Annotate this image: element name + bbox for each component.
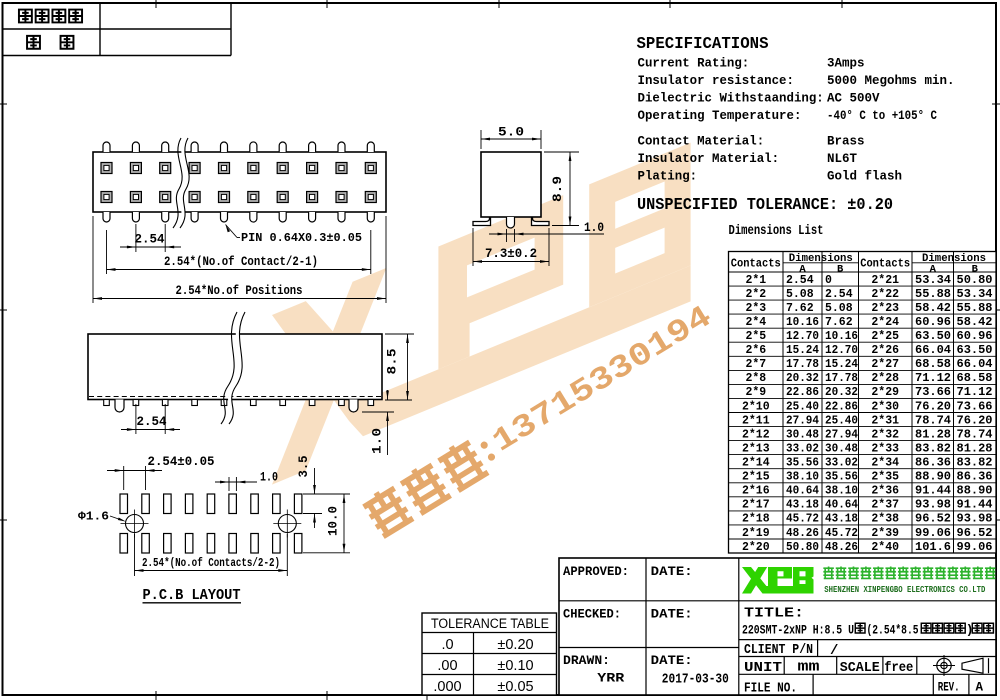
svg-text:2.54: 2.54 xyxy=(825,288,853,301)
svg-text:±0.05: ±0.05 xyxy=(497,679,533,695)
svg-text:68.58: 68.58 xyxy=(915,358,951,371)
svg-text:DRAWN:: DRAWN: xyxy=(563,653,610,668)
svg-text:38.10: 38.10 xyxy=(825,485,858,498)
svg-text:81.28: 81.28 xyxy=(957,442,993,455)
svg-text:2*33: 2*33 xyxy=(871,442,899,455)
svg-text:NL6T: NL6T xyxy=(827,152,858,166)
svg-text:2.54: 2.54 xyxy=(135,233,165,247)
svg-text:free: free xyxy=(884,661,913,676)
svg-text:43.18: 43.18 xyxy=(786,499,819,512)
svg-text:3Amps: 3Amps xyxy=(827,57,865,71)
svg-text:2*26: 2*26 xyxy=(871,344,899,357)
svg-text:2*1: 2*1 xyxy=(745,274,766,287)
svg-text:2*12: 2*12 xyxy=(742,428,770,441)
svg-text:1.0: 1.0 xyxy=(584,221,604,235)
svg-text:25.40: 25.40 xyxy=(786,400,819,413)
svg-text:30.48: 30.48 xyxy=(825,442,858,455)
svg-text:101.6: 101.6 xyxy=(915,541,951,554)
svg-text:86.36: 86.36 xyxy=(915,457,951,470)
svg-text:2*30: 2*30 xyxy=(871,400,899,413)
svg-text:TITLE:: TITLE: xyxy=(744,607,804,622)
svg-text:DATE:: DATE: xyxy=(651,564,693,579)
svg-text:78.74: 78.74 xyxy=(915,414,951,427)
svg-text:DATE:: DATE: xyxy=(651,607,693,622)
svg-text:2*32: 2*32 xyxy=(871,428,899,441)
svg-text:SCALE: SCALE xyxy=(840,661,880,676)
svg-text:40.64: 40.64 xyxy=(825,499,858,512)
svg-text:P.C.B LAYOUT: P.C.B LAYOUT xyxy=(143,588,241,604)
svg-text:Plating:: Plating: xyxy=(638,170,698,184)
svg-text:2*5: 2*5 xyxy=(745,330,766,343)
svg-text:.0: .0 xyxy=(441,637,453,653)
svg-text:91.44: 91.44 xyxy=(957,499,993,512)
svg-text:2*4: 2*4 xyxy=(745,316,766,329)
svg-text:76.20: 76.20 xyxy=(957,414,993,427)
svg-text:Φ1.6: Φ1.6 xyxy=(78,510,109,524)
svg-text:66.04: 66.04 xyxy=(957,358,993,371)
svg-text:AC 500V: AC 500V xyxy=(827,92,880,106)
svg-text:2*8: 2*8 xyxy=(745,372,766,385)
svg-text:1.0: 1.0 xyxy=(260,471,278,485)
svg-text:-40° C to +105° C: -40° C to +105° C xyxy=(827,109,937,123)
svg-text:45.72: 45.72 xyxy=(786,513,819,526)
svg-text:2*34: 2*34 xyxy=(871,457,899,470)
svg-text:40.64: 40.64 xyxy=(786,485,819,498)
svg-text:2*24: 2*24 xyxy=(871,316,899,329)
svg-text:7.62: 7.62 xyxy=(786,302,814,315)
svg-text:2*39: 2*39 xyxy=(871,527,899,540)
svg-text:68.58: 68.58 xyxy=(957,372,993,385)
svg-text:22.86: 22.86 xyxy=(825,400,858,413)
svg-text:20.32: 20.32 xyxy=(825,386,858,399)
svg-text:17.78: 17.78 xyxy=(825,372,858,385)
svg-text:35.56: 35.56 xyxy=(786,457,819,470)
svg-text:93.98: 93.98 xyxy=(957,513,993,526)
svg-text:20.32: 20.32 xyxy=(786,372,819,385)
svg-text:2*6: 2*6 xyxy=(745,344,766,357)
svg-text:76.20: 76.20 xyxy=(915,400,951,413)
svg-text:Operating Temperature:: Operating Temperature: xyxy=(638,109,802,123)
svg-text:53.34: 53.34 xyxy=(957,288,993,301)
svg-text:SPECIFICATIONS: SPECIFICATIONS xyxy=(637,34,769,53)
svg-text:99.06: 99.06 xyxy=(957,541,993,554)
svg-text:7.62: 7.62 xyxy=(825,316,853,329)
svg-text:58.42: 58.42 xyxy=(915,302,951,315)
svg-text:96.52: 96.52 xyxy=(957,527,993,540)
svg-text:/: / xyxy=(830,643,838,659)
svg-text:.00: .00 xyxy=(437,658,457,674)
svg-text:5.08: 5.08 xyxy=(825,302,853,315)
svg-text:UNIT: UNIT xyxy=(744,661,782,676)
svg-text:2*7: 2*7 xyxy=(745,358,766,371)
svg-text:DATE:: DATE: xyxy=(651,653,693,668)
svg-text:5.0: 5.0 xyxy=(498,126,524,140)
svg-text:60.96: 60.96 xyxy=(915,316,951,329)
svg-text:83.82: 83.82 xyxy=(915,442,951,455)
svg-text:83.82: 83.82 xyxy=(957,457,993,470)
svg-text:Insulator Material:: Insulator Material: xyxy=(638,152,780,166)
svg-text:2*25: 2*25 xyxy=(871,330,899,343)
svg-text:2*23: 2*23 xyxy=(871,302,899,315)
svg-text:55.88: 55.88 xyxy=(957,302,993,315)
svg-text:0: 0 xyxy=(825,274,832,287)
svg-text:2.54: 2.54 xyxy=(137,415,167,429)
svg-text:2*31: 2*31 xyxy=(871,414,899,427)
svg-text:CLIENT P/N: CLIENT P/N xyxy=(744,643,813,658)
svg-text:10.16: 10.16 xyxy=(786,316,819,329)
svg-text:Contacts: Contacts xyxy=(860,258,910,271)
svg-text:±0.20: ±0.20 xyxy=(497,637,533,653)
svg-text:60.96: 60.96 xyxy=(957,330,993,343)
svg-text:25.40: 25.40 xyxy=(825,414,858,427)
svg-text:10.0: 10.0 xyxy=(327,506,341,536)
svg-text:33.02: 33.02 xyxy=(825,457,858,470)
svg-text:2.54*(No.of Contact/2-1): 2.54*(No.of Contact/2-1) xyxy=(164,255,318,269)
svg-text:2*22: 2*22 xyxy=(871,288,899,301)
svg-text:58.42: 58.42 xyxy=(957,316,993,329)
svg-text:Contact Material:: Contact Material: xyxy=(638,135,765,149)
svg-text:63.50: 63.50 xyxy=(915,330,951,343)
svg-text:2*36: 2*36 xyxy=(871,485,899,498)
svg-text:2*38: 2*38 xyxy=(871,513,899,526)
svg-text:REV.: REV. xyxy=(938,681,960,695)
svg-text:.000: .000 xyxy=(433,679,461,695)
svg-text:27.94: 27.94 xyxy=(825,428,858,441)
svg-text:(2.54*8.5: (2.54*8.5 xyxy=(867,623,919,638)
svg-text:55.88: 55.88 xyxy=(915,288,951,301)
svg-text:71.12: 71.12 xyxy=(957,386,993,399)
svg-text:TOLERANCE TABLE: TOLERANCE TABLE xyxy=(431,616,549,631)
svg-text:PIN 0.64X0.3±0.05: PIN 0.64X0.3±0.05 xyxy=(241,231,362,245)
svg-text:48.26: 48.26 xyxy=(786,527,819,540)
svg-text:22.86: 22.86 xyxy=(786,386,819,399)
svg-text:YRR: YRR xyxy=(597,671,624,686)
svg-text:2*10: 2*10 xyxy=(742,400,770,413)
svg-text:2*35: 2*35 xyxy=(871,471,899,484)
svg-text:Dielectric Withstaanding:: Dielectric Withstaanding: xyxy=(638,92,824,106)
svg-text:12.70: 12.70 xyxy=(825,344,858,357)
svg-text:mm: mm xyxy=(798,659,820,676)
svg-text:2017-03-30: 2017-03-30 xyxy=(662,673,729,688)
svg-text:73.66: 73.66 xyxy=(957,400,993,413)
svg-text:5.08: 5.08 xyxy=(786,288,814,301)
svg-text:1.0: 1.0 xyxy=(371,428,385,454)
svg-text:53.34: 53.34 xyxy=(915,274,951,287)
svg-text:96.52: 96.52 xyxy=(915,513,951,526)
svg-text:±0.10: ±0.10 xyxy=(497,658,533,674)
svg-text:2*19: 2*19 xyxy=(742,527,770,540)
svg-text:91.44: 91.44 xyxy=(915,485,951,498)
svg-text:2*13: 2*13 xyxy=(742,442,770,455)
svg-text:B: B xyxy=(837,263,844,275)
svg-text:27.94: 27.94 xyxy=(786,414,819,427)
svg-text:2.54*(No.of Contacts/2-2): 2.54*(No.of Contacts/2-2) xyxy=(142,557,280,570)
svg-text:Current Rating:: Current Rating: xyxy=(638,57,750,71)
svg-text:50.80: 50.80 xyxy=(957,274,993,287)
svg-text:38.10: 38.10 xyxy=(786,471,819,484)
svg-text:30.48: 30.48 xyxy=(786,428,819,441)
svg-text:Contacts: Contacts xyxy=(731,258,781,271)
svg-text:2*17: 2*17 xyxy=(742,499,770,512)
svg-text:45.72: 45.72 xyxy=(825,527,858,540)
svg-text:2*3: 2*3 xyxy=(745,302,766,315)
svg-text:2*16: 2*16 xyxy=(742,485,770,498)
svg-text:FILE NO.: FILE NO. xyxy=(744,682,797,697)
svg-text:2.54*No.of Positions: 2.54*No.of Positions xyxy=(176,283,303,298)
svg-text:35.56: 35.56 xyxy=(825,471,858,484)
svg-text:3.5: 3.5 xyxy=(297,456,311,478)
svg-text:Brass: Brass xyxy=(827,135,865,149)
svg-text:APPROVED:: APPROVED: xyxy=(563,564,629,579)
svg-text:2.54±0.05: 2.54±0.05 xyxy=(148,455,215,469)
svg-text:2*29: 2*29 xyxy=(871,386,899,399)
svg-text:2.54: 2.54 xyxy=(786,274,814,287)
svg-text:8.5: 8.5 xyxy=(386,349,400,375)
svg-text:81.28: 81.28 xyxy=(915,428,951,441)
svg-text:A: A xyxy=(976,681,984,695)
svg-text:2*14: 2*14 xyxy=(742,457,770,470)
svg-text:2*18: 2*18 xyxy=(742,513,770,526)
svg-text:88.90: 88.90 xyxy=(957,485,993,498)
svg-text:Dimensions List: Dimensions List xyxy=(729,224,824,239)
svg-text:UNSPECIFIED TOLERANCE: ±0.20: UNSPECIFIED TOLERANCE: ±0.20 xyxy=(637,195,893,214)
svg-text:78.74: 78.74 xyxy=(957,428,993,441)
svg-text:33.02: 33.02 xyxy=(786,442,819,455)
svg-text:15.24: 15.24 xyxy=(825,358,858,371)
svg-text:48.26: 48.26 xyxy=(825,541,858,554)
svg-text:7.3±0.2: 7.3±0.2 xyxy=(485,247,537,261)
svg-text:2*9: 2*9 xyxy=(745,386,766,399)
svg-text:2*40: 2*40 xyxy=(871,541,899,554)
svg-text:99.06: 99.06 xyxy=(915,527,951,540)
svg-text:Gold flash: Gold flash xyxy=(827,170,902,184)
svg-text:86.36: 86.36 xyxy=(957,471,993,484)
svg-text:10.16: 10.16 xyxy=(825,330,858,343)
svg-text:12.70: 12.70 xyxy=(786,330,819,343)
svg-text:SHENZHEN XINPENGBO ELECTRONICS: SHENZHEN XINPENGBO ELECTRONICS CO.LTD xyxy=(824,584,985,595)
svg-text:220SMT-2xNP H:8.5 U: 220SMT-2xNP H:8.5 U xyxy=(742,623,854,638)
svg-text:63.50: 63.50 xyxy=(957,344,993,357)
svg-text:Insulator resistance:: Insulator resistance: xyxy=(638,74,794,88)
svg-text:93.98: 93.98 xyxy=(915,499,951,512)
svg-text:66.04: 66.04 xyxy=(915,344,951,357)
svg-text:43.18: 43.18 xyxy=(825,513,858,526)
svg-text:17.78: 17.78 xyxy=(786,358,819,371)
svg-text:2*27: 2*27 xyxy=(871,358,899,371)
svg-text:2*2: 2*2 xyxy=(745,288,766,301)
svg-text:71.12: 71.12 xyxy=(915,372,951,385)
svg-text:2*20: 2*20 xyxy=(742,541,770,554)
svg-text:50.80: 50.80 xyxy=(786,541,819,554)
svg-text:2*15: 2*15 xyxy=(742,471,770,484)
svg-text:2*28: 2*28 xyxy=(871,372,899,385)
svg-text:15.24: 15.24 xyxy=(786,344,819,357)
svg-text:2*21: 2*21 xyxy=(871,274,899,287)
svg-text:88.90: 88.90 xyxy=(915,471,951,484)
svg-text:2*37: 2*37 xyxy=(871,499,899,512)
svg-text:8.9: 8.9 xyxy=(551,176,565,202)
svg-text:73.66: 73.66 xyxy=(915,386,951,399)
svg-text:2*11: 2*11 xyxy=(742,414,770,427)
svg-text:5000 Megohms min.: 5000 Megohms min. xyxy=(827,74,955,88)
svg-text:CHECKED:: CHECKED: xyxy=(563,607,621,622)
